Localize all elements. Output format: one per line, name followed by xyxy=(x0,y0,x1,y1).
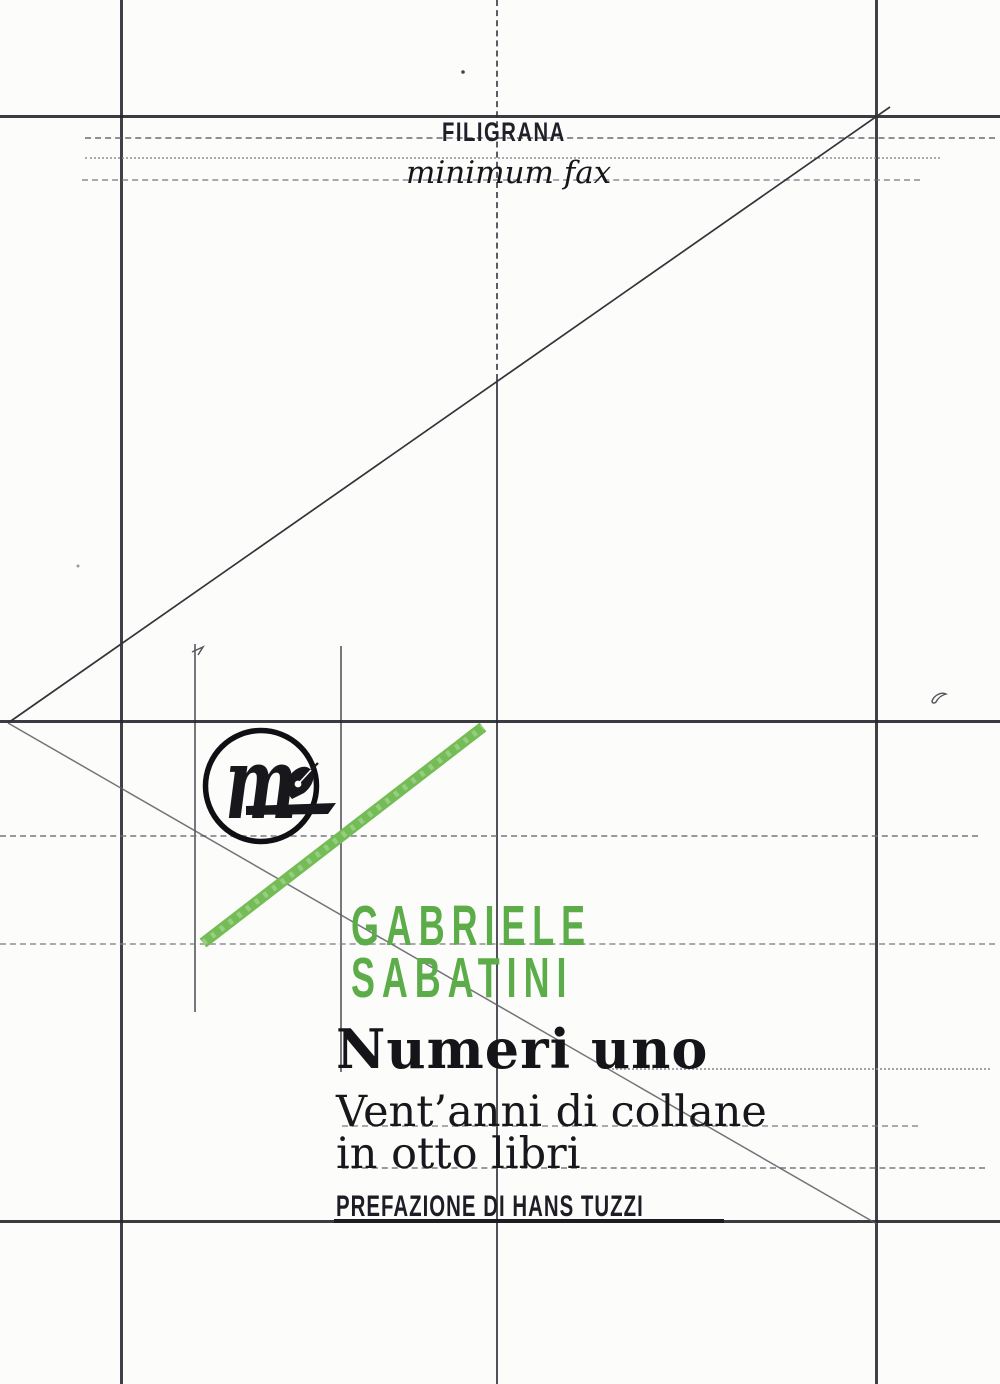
guide-vertical-logo-left xyxy=(194,644,196,1012)
grid-horizontal-middle xyxy=(0,720,1000,723)
logo-baseline-swash xyxy=(246,803,336,815)
logo-circle xyxy=(206,731,317,842)
diagonal-guide-line-up xyxy=(8,107,890,723)
ink-speck-left xyxy=(77,565,80,568)
book-cover: m FILIGRANA minimum fax GABRIELE SABATIN… xyxy=(0,0,1000,1384)
pencil-scribble-mark xyxy=(932,693,946,703)
logo-letter-m: m xyxy=(225,726,297,843)
grid-vertical-center xyxy=(496,380,498,1384)
publisher-name: minimum fax xyxy=(406,158,611,189)
series-name: FILIGRANA xyxy=(442,117,566,148)
subtitle-line-2: in otto libri xyxy=(336,1133,767,1175)
ink-speck-top xyxy=(461,70,465,74)
pen-nib-icon xyxy=(287,763,318,799)
grid-vertical-right xyxy=(875,0,878,1384)
author-last-name: SABATINI xyxy=(351,950,573,1007)
guide-vertical-text-margin xyxy=(340,646,342,1072)
preface-credit: PREFAZIONE DI HANS TUZZI xyxy=(336,1192,644,1222)
minimum-fax-logo: m xyxy=(206,726,337,843)
subtitle-line-1: Vent’anni di collane xyxy=(336,1091,767,1133)
book-title: Numeri uno xyxy=(336,1022,708,1076)
guide-line-below-logo xyxy=(0,835,978,837)
grid-vertical-left xyxy=(120,0,123,1384)
book-subtitle: Vent’anni di collane in otto libri xyxy=(336,1091,767,1175)
